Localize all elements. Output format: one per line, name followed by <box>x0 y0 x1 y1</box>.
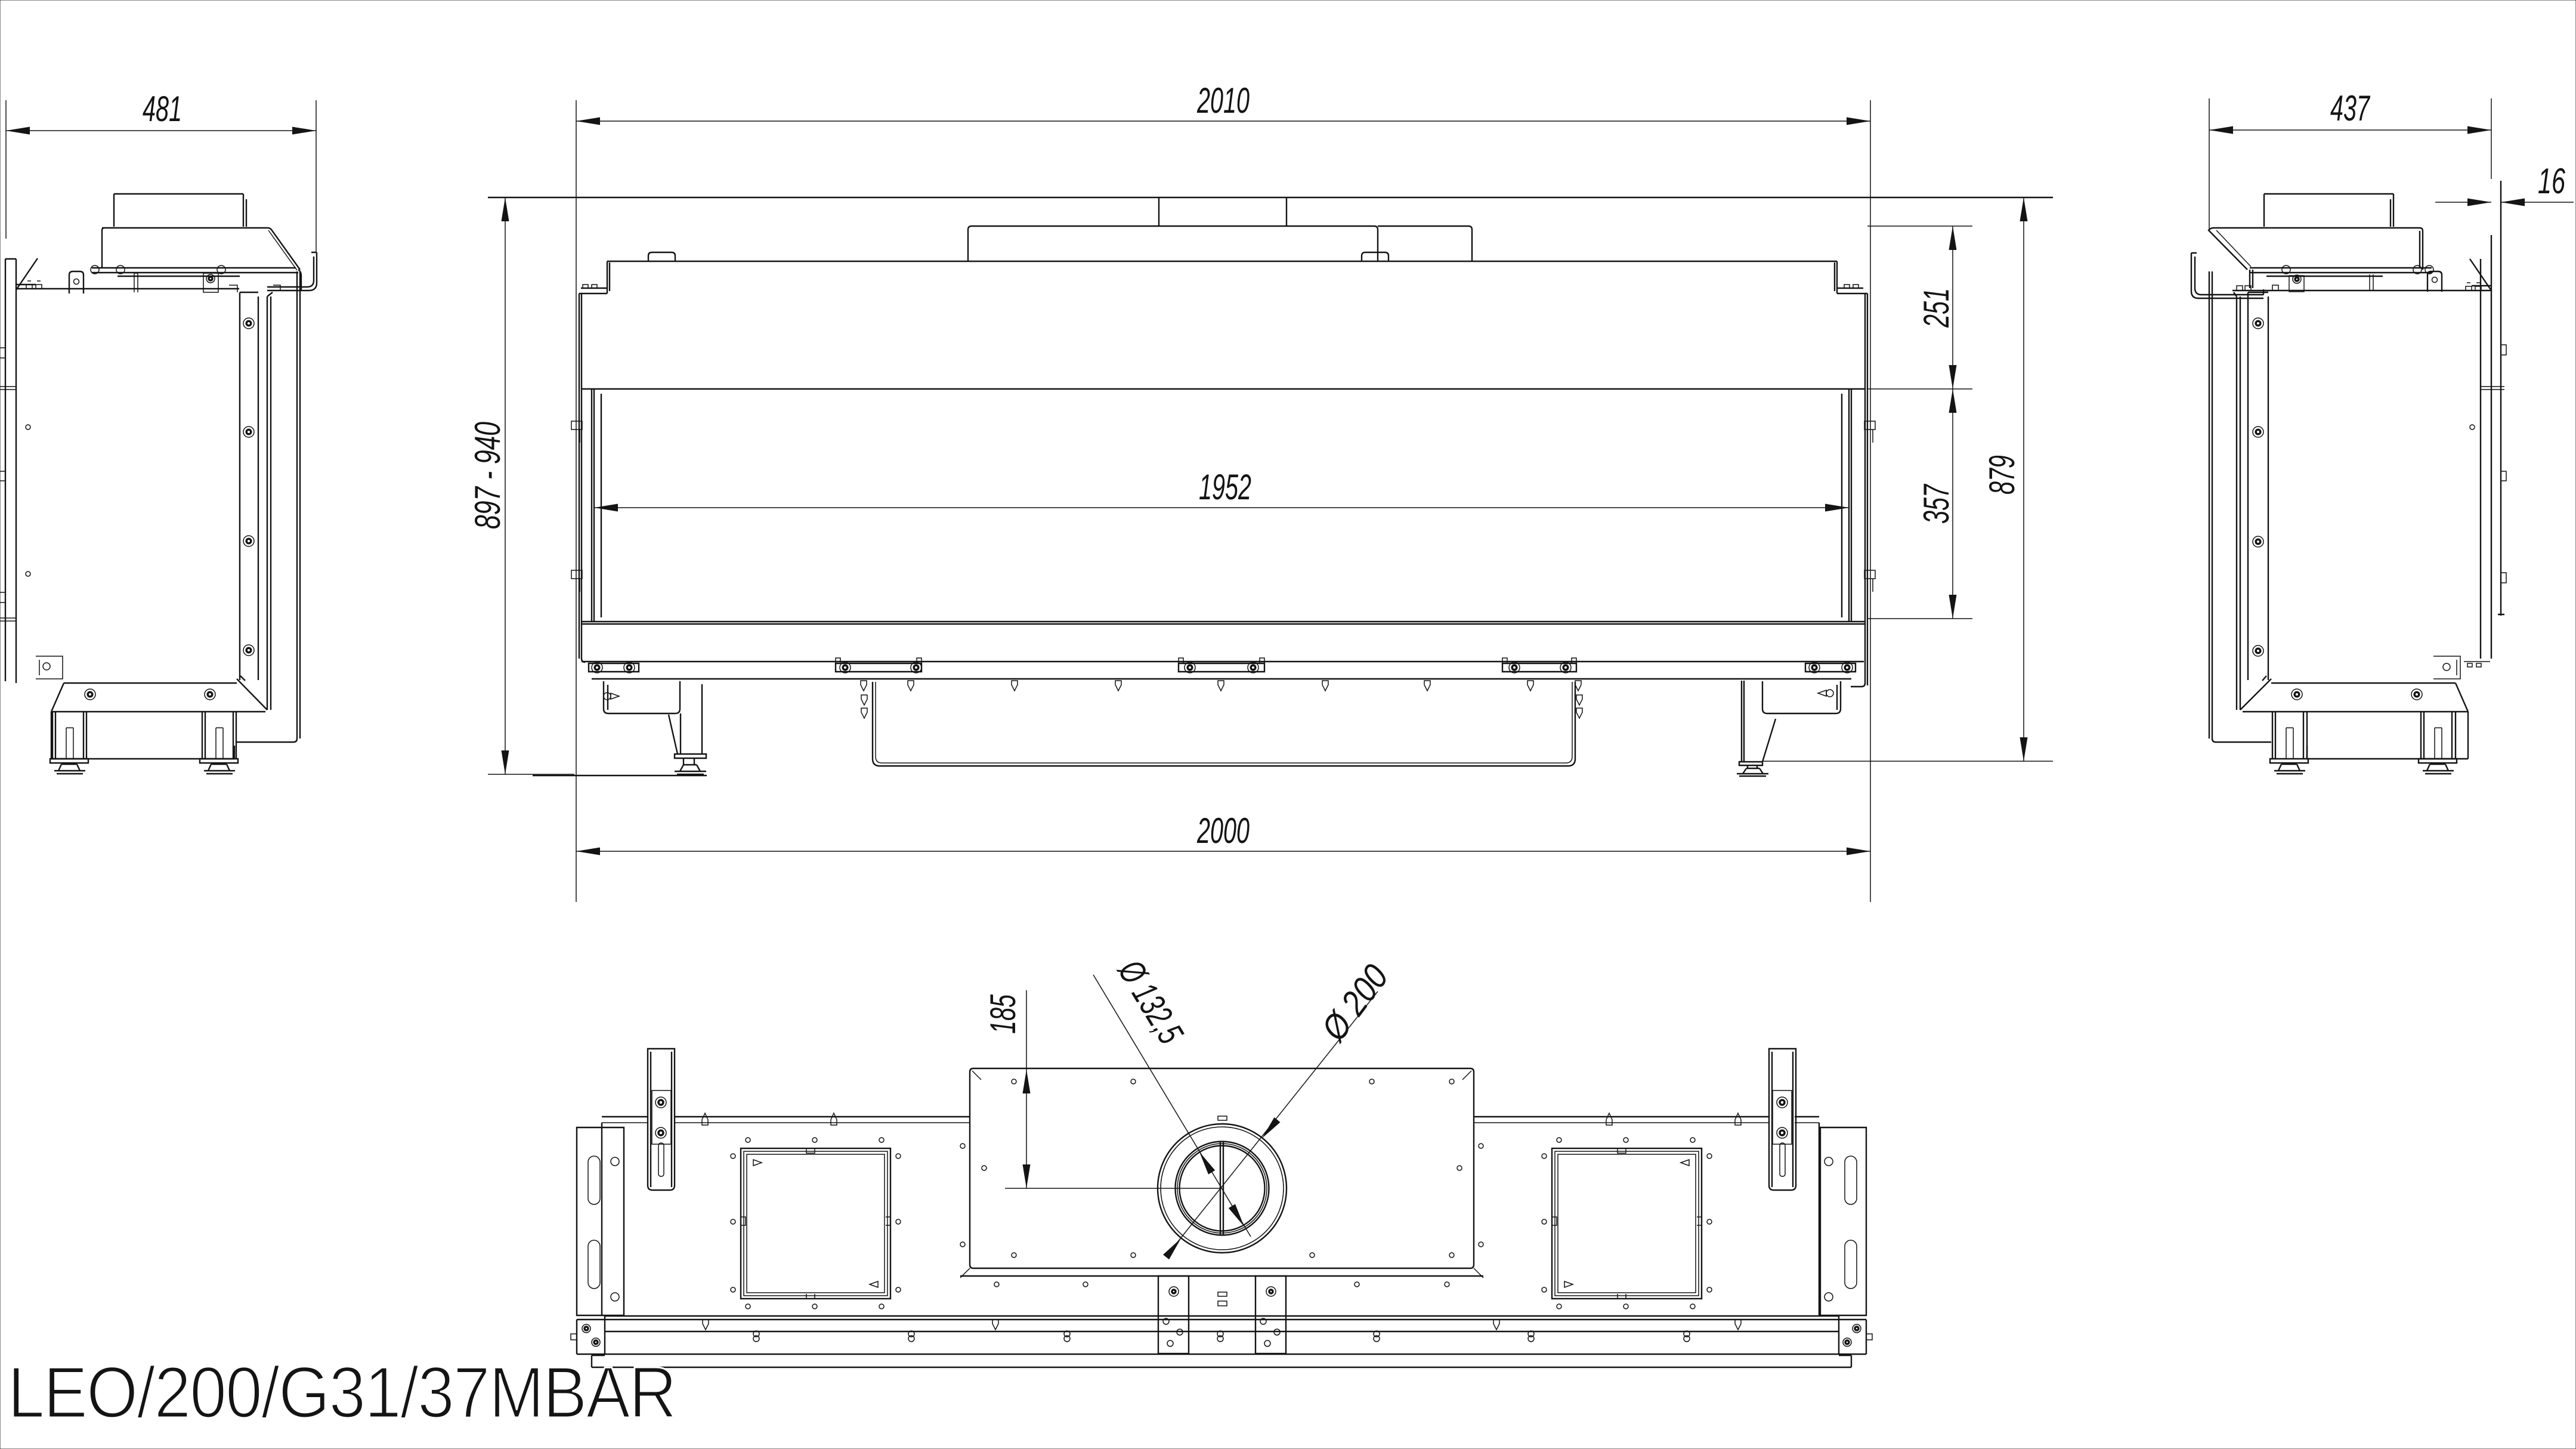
svg-text:Ø 200: Ø 200 <box>1313 957 1396 1049</box>
svg-text:185: 185 <box>983 994 1023 1034</box>
svg-text:897 - 940: 897 - 940 <box>468 422 508 529</box>
svg-text:2000: 2000 <box>1196 811 1250 851</box>
svg-text:251: 251 <box>1916 288 1956 328</box>
svg-text:LEO/200/G31/37MBAR: LEO/200/G31/37MBAR <box>8 1352 676 1433</box>
svg-text:357: 357 <box>1916 483 1956 524</box>
svg-text:437: 437 <box>2330 88 2371 128</box>
svg-text:16: 16 <box>2538 161 2565 201</box>
svg-text:Ø 132,5: Ø 132,5 <box>1111 953 1192 1051</box>
svg-text:481: 481 <box>143 89 182 129</box>
svg-text:2010: 2010 <box>1196 81 1250 121</box>
svg-text:879: 879 <box>1982 455 2022 495</box>
svg-text:1952: 1952 <box>1199 467 1251 507</box>
